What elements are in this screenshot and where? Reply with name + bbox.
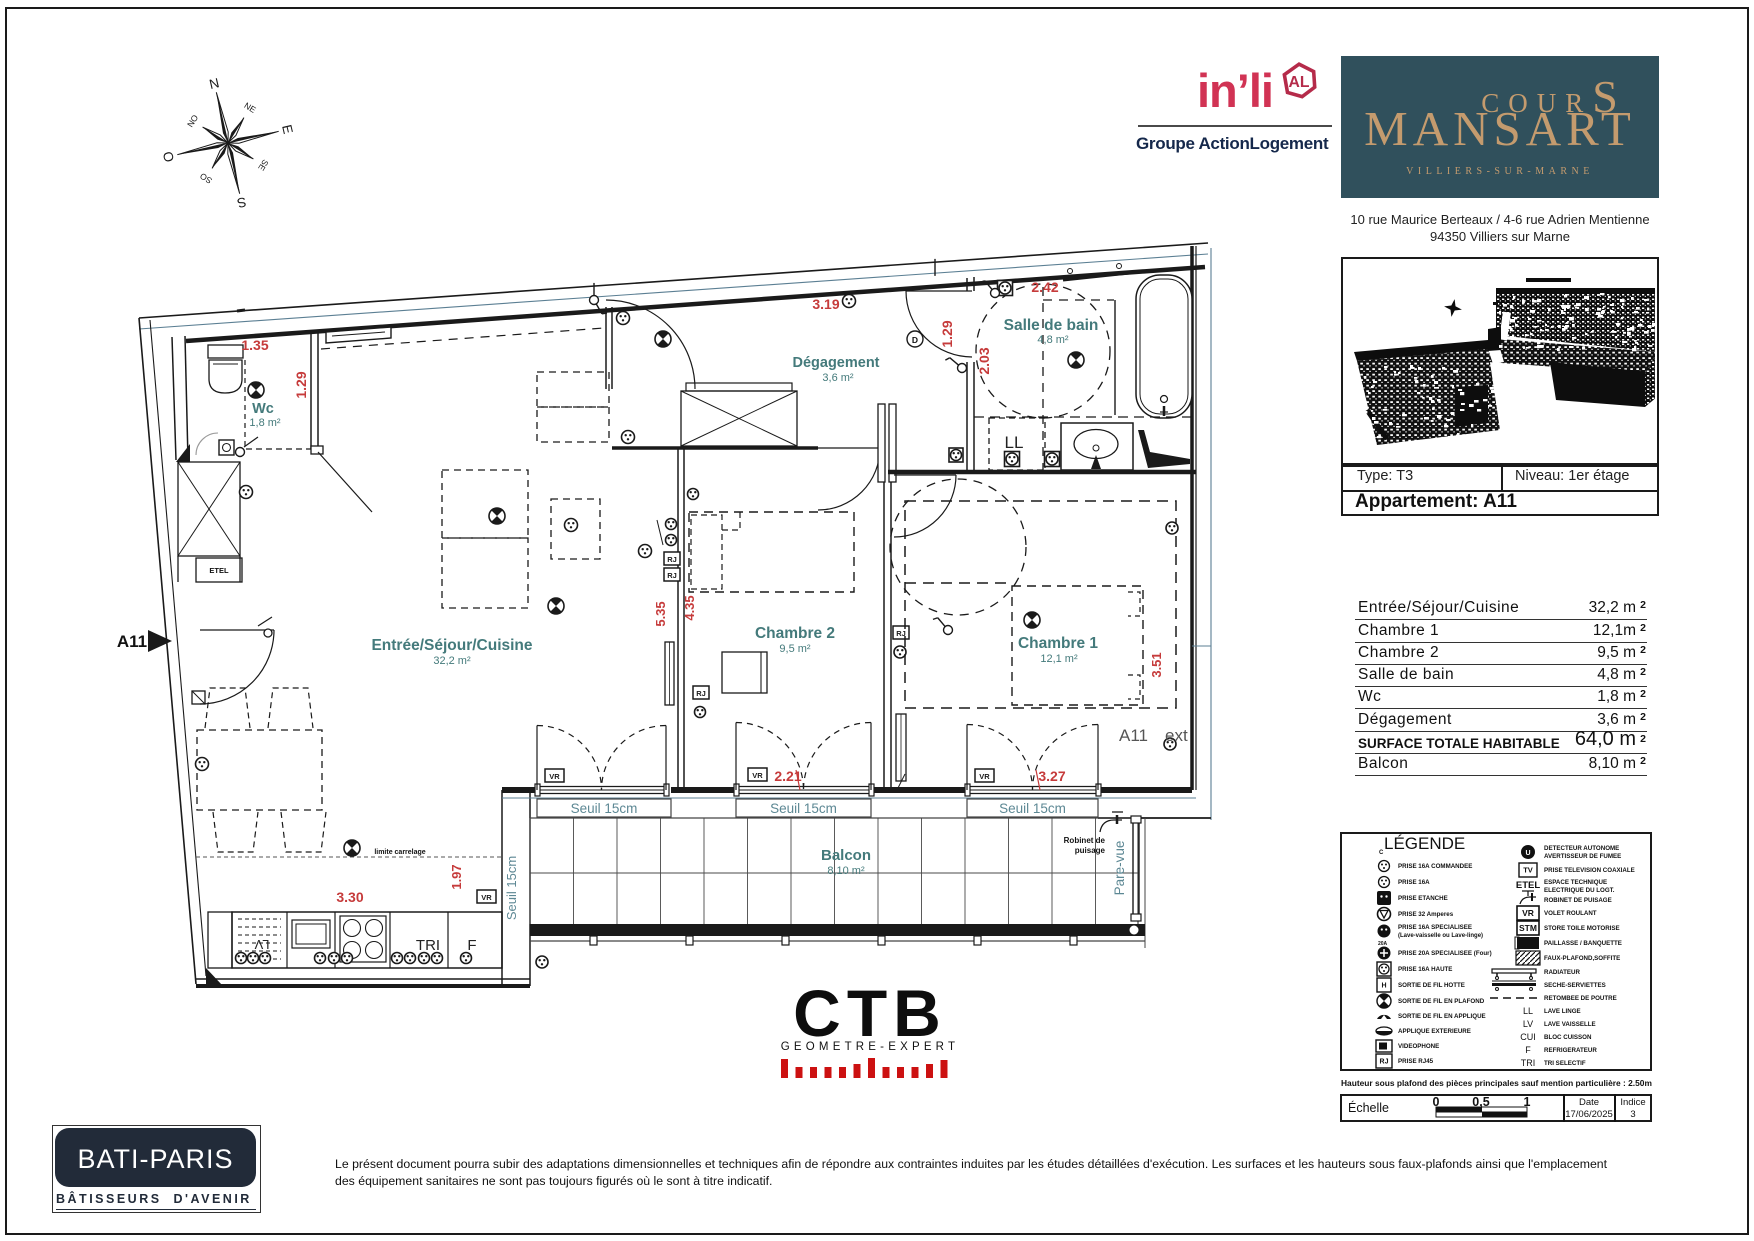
svg-text:F: F — [467, 937, 476, 954]
svg-text:3.51: 3.51 — [1149, 652, 1164, 677]
svg-text:NE: NE — [242, 100, 258, 115]
svg-text:N: N — [208, 75, 221, 92]
svg-text:2.03: 2.03 — [976, 347, 992, 374]
svg-text:RJ: RJ — [667, 571, 677, 580]
svg-text:VR: VR — [549, 772, 560, 781]
svg-text:1.97: 1.97 — [449, 864, 464, 889]
svg-text:puisage: puisage — [1075, 846, 1106, 855]
svg-text:3.30: 3.30 — [336, 889, 363, 905]
svg-text:3,6 m²: 3,6 m² — [822, 372, 854, 384]
svg-text:D: D — [912, 335, 918, 345]
svg-text:RJ: RJ — [696, 689, 706, 698]
svg-text:12,1 m²: 12,1 m² — [1040, 653, 1078, 665]
svg-text:VR: VR — [752, 771, 763, 780]
svg-text:Dégagement: Dégagement — [792, 355, 879, 371]
svg-text:Seuil 15cm: Seuil 15cm — [999, 801, 1066, 816]
svg-text:VR: VR — [979, 772, 990, 781]
svg-text:O: O — [160, 150, 177, 164]
svg-text:ext: ext — [1165, 726, 1188, 745]
svg-text:1.29: 1.29 — [293, 371, 309, 398]
svg-text:1.35: 1.35 — [241, 337, 268, 353]
svg-text:4,8 m²: 4,8 m² — [1037, 334, 1069, 346]
svg-text:3.19: 3.19 — [812, 296, 839, 312]
svg-text:TRI: TRI — [416, 937, 440, 954]
svg-text:Salle de bain: Salle de bain — [1004, 317, 1099, 334]
svg-text:9,5 m²: 9,5 m² — [779, 643, 811, 655]
svg-text:Pare-vue: Pare-vue — [1112, 841, 1127, 896]
svg-text:NO: NO — [185, 113, 200, 129]
svg-text:5.35: 5.35 — [653, 601, 668, 626]
svg-text:LV: LV — [254, 937, 269, 952]
svg-text:limite carrelage: limite carrelage — [374, 849, 425, 856]
svg-text:Entrée/Séjour/Cuisine: Entrée/Séjour/Cuisine — [371, 637, 532, 654]
svg-text:SE: SE — [256, 158, 271, 173]
svg-text:Seuil 15cm: Seuil 15cm — [504, 856, 519, 920]
svg-text:Wc: Wc — [252, 401, 274, 417]
svg-text:1.29: 1.29 — [939, 320, 955, 347]
svg-text:Chambre 2: Chambre 2 — [755, 625, 835, 642]
svg-text:Seuil 15cm: Seuil 15cm — [770, 801, 837, 816]
svg-text:E: E — [279, 123, 296, 135]
svg-text:RJ: RJ — [667, 555, 677, 564]
svg-text:1,8 m²: 1,8 m² — [249, 417, 281, 429]
svg-text:2.42: 2.42 — [1031, 279, 1058, 295]
svg-text:4.35: 4.35 — [682, 595, 697, 620]
svg-text:A11: A11 — [117, 632, 147, 651]
svg-text:VR: VR — [481, 893, 492, 902]
svg-text:8,10 m²: 8,10 m² — [827, 865, 865, 877]
svg-text:Balcon: Balcon — [821, 847, 871, 864]
svg-text:A11: A11 — [1119, 726, 1148, 745]
svg-text:LL: LL — [1005, 433, 1024, 452]
svg-text:ETEL: ETEL — [209, 566, 229, 575]
svg-text:SO: SO — [198, 171, 214, 186]
svg-text:Seuil 15cm: Seuil 15cm — [571, 801, 638, 816]
svg-text:Robinet de: Robinet de — [1064, 836, 1106, 845]
svg-text:Chambre 1: Chambre 1 — [1018, 635, 1098, 652]
svg-text:S: S — [236, 194, 248, 211]
svg-text:32,2 m²: 32,2 m² — [433, 655, 471, 667]
svg-text:3.27: 3.27 — [1038, 768, 1065, 784]
